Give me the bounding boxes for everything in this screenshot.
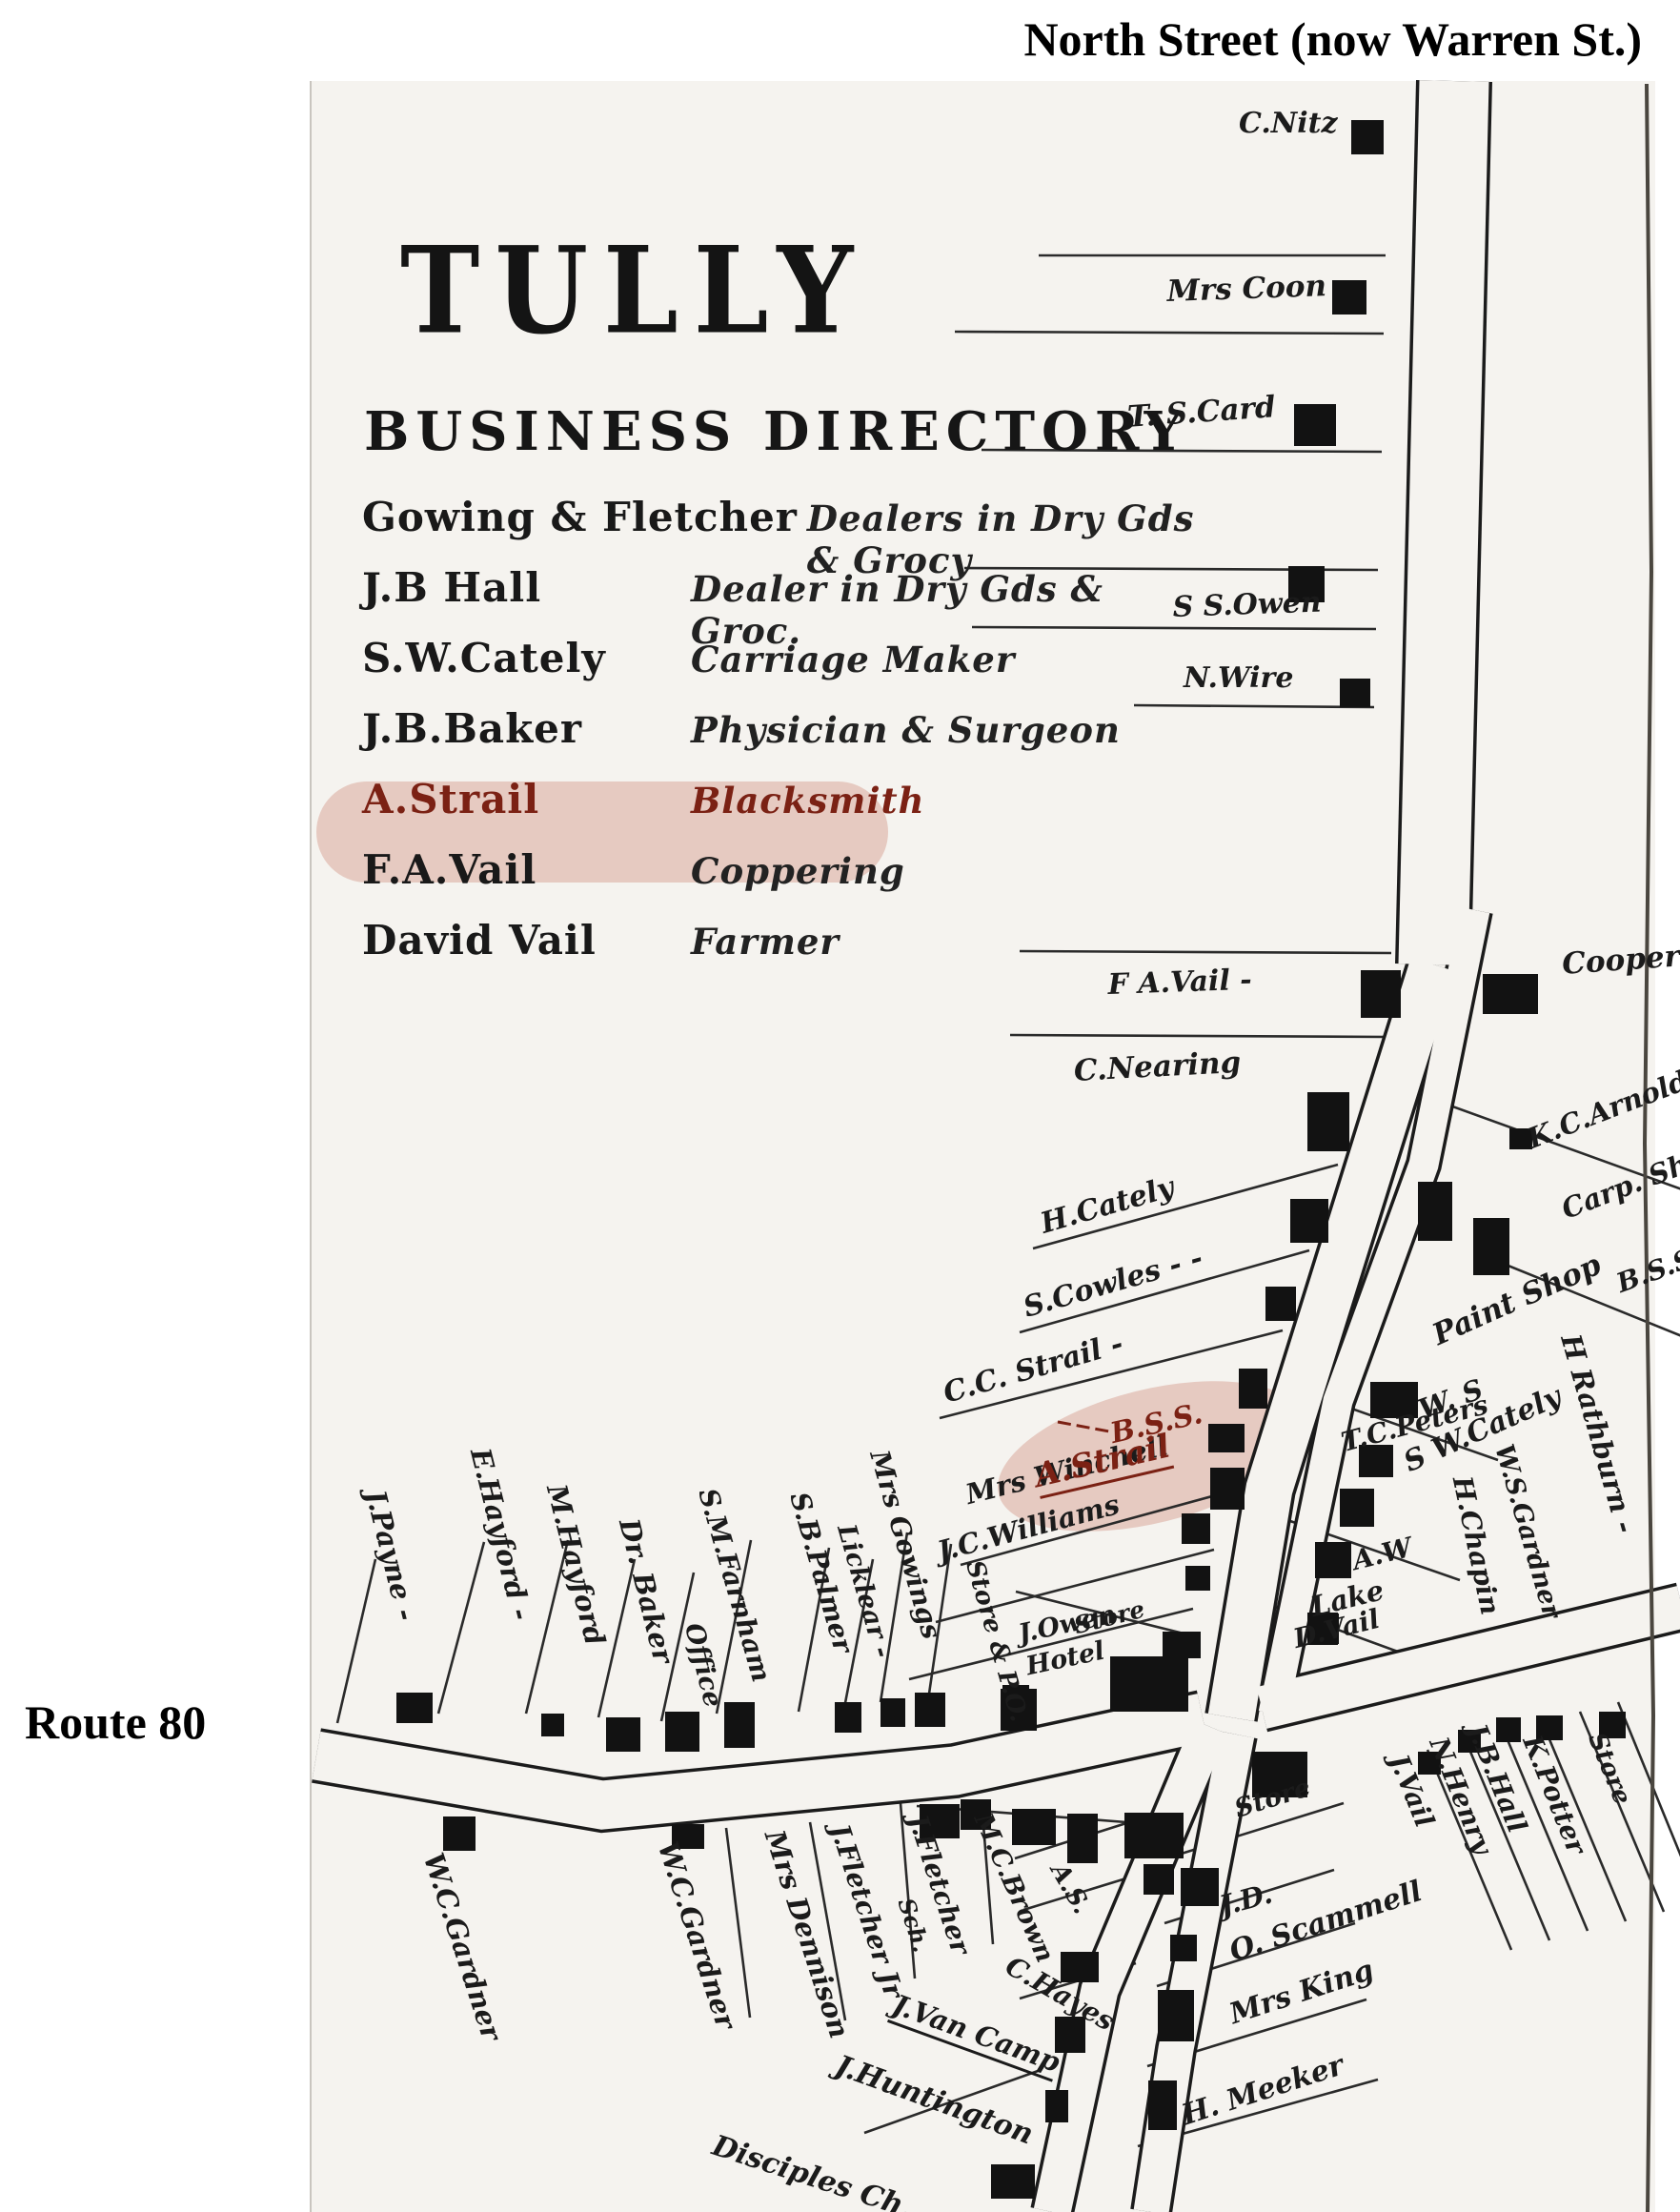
building-marker [1351, 120, 1384, 154]
building-marker [396, 1693, 433, 1723]
building-marker [1265, 1287, 1296, 1321]
lot-line [438, 1542, 484, 1714]
map-label: N.Wire [1184, 661, 1293, 695]
building-marker [1208, 1424, 1245, 1452]
building-marker [1332, 280, 1366, 315]
building-marker [1148, 2080, 1177, 2130]
screenshot-root: North Street (now Warren St.) Route 80 T… [0, 0, 1680, 2212]
building-marker [1163, 1632, 1201, 1658]
building-marker [1158, 1990, 1194, 2041]
building-marker [1181, 1868, 1219, 1906]
building-marker [1061, 1952, 1099, 1982]
map-label: S S.Owen [1172, 586, 1322, 624]
directory-entry: A.StrailBlacksmith [362, 776, 1220, 846]
directory-entry-occupation: Coppering [691, 850, 905, 892]
directory-entry-occupation: Carriage Maker [691, 639, 1015, 680]
building-marker [1290, 1199, 1328, 1243]
directory-entry-occupation: Physician & Surgeon [691, 709, 1121, 751]
building-marker [606, 1717, 640, 1752]
building-marker [1340, 679, 1370, 707]
building-marker [1483, 974, 1538, 1014]
building-marker [1124, 1813, 1184, 1858]
building-marker [1418, 1182, 1452, 1241]
building-marker [1496, 1717, 1521, 1742]
building-marker [1340, 1489, 1374, 1527]
directory-entry-name: J.B Hall [362, 564, 691, 611]
building-marker [1239, 1369, 1267, 1409]
building-marker [1067, 1814, 1098, 1863]
directory-entry: David VailFarmer [362, 917, 1220, 987]
building-marker [1110, 1656, 1188, 1712]
directory-entry-name: Gowing & Fletcher [362, 494, 807, 540]
building-marker [1185, 1566, 1210, 1591]
building-marker [665, 1712, 699, 1752]
directory-entry: Gowing & FletcherDealers in Dry Gds & Gr… [362, 494, 1220, 564]
building-marker [1170, 1935, 1197, 1961]
directory-entry-name: F.A.Vail [362, 846, 691, 893]
map-label: Mrs Coon [1166, 269, 1327, 309]
building-marker [1294, 404, 1336, 446]
directory-entry: J.B.BakerPhysician & Surgeon [362, 705, 1220, 776]
road-surface [1433, 81, 1454, 964]
building-marker [724, 1702, 755, 1748]
lot-line [1010, 1035, 1387, 1037]
building-marker [1182, 1513, 1210, 1544]
directory-entry-name: David Vail [362, 917, 691, 964]
building-marker [1144, 1864, 1174, 1895]
directory-entry-name: A.Strail [362, 776, 691, 822]
building-marker [1307, 1092, 1349, 1151]
building-marker [1315, 1542, 1351, 1578]
building-marker [1045, 2090, 1068, 2122]
directory-entry-occupation: Blacksmith [691, 780, 925, 822]
building-marker [1210, 1468, 1245, 1510]
building-marker [835, 1702, 861, 1733]
building-marker [1473, 1218, 1509, 1275]
business-directory: Gowing & FletcherDealers in Dry Gds & Gr… [362, 494, 1220, 987]
building-marker [991, 2164, 1035, 2199]
map-label: F A.Vail - [1107, 964, 1252, 1002]
directory-entry-name: J.B.Baker [362, 705, 691, 752]
directory-entry-occupation: Farmer [691, 921, 840, 963]
building-marker [443, 1816, 476, 1851]
map-title: TULLY [400, 221, 868, 361]
directory-entry-name: S.W.Cately [362, 635, 691, 681]
directory-heading: BUSINESS DIRECTORY [364, 400, 1189, 463]
building-marker [1012, 1809, 1056, 1845]
directory-entry: S.W.CatelyCarriage Maker [362, 635, 1220, 705]
lot-line [955, 332, 1384, 334]
map-label: C.Nitz [1239, 107, 1338, 140]
directory-entry: F.A.VailCoppering [362, 846, 1220, 917]
building-marker [915, 1693, 945, 1727]
directory-entry: J.B HallDealer in Dry Gds & Groc. [362, 564, 1220, 635]
building-marker [1361, 970, 1401, 1018]
lot-line [337, 1559, 375, 1723]
building-marker [880, 1698, 905, 1727]
paper-edge [1645, 84, 1653, 2212]
road-surface [316, 1717, 1203, 1805]
building-marker [541, 1714, 564, 1736]
